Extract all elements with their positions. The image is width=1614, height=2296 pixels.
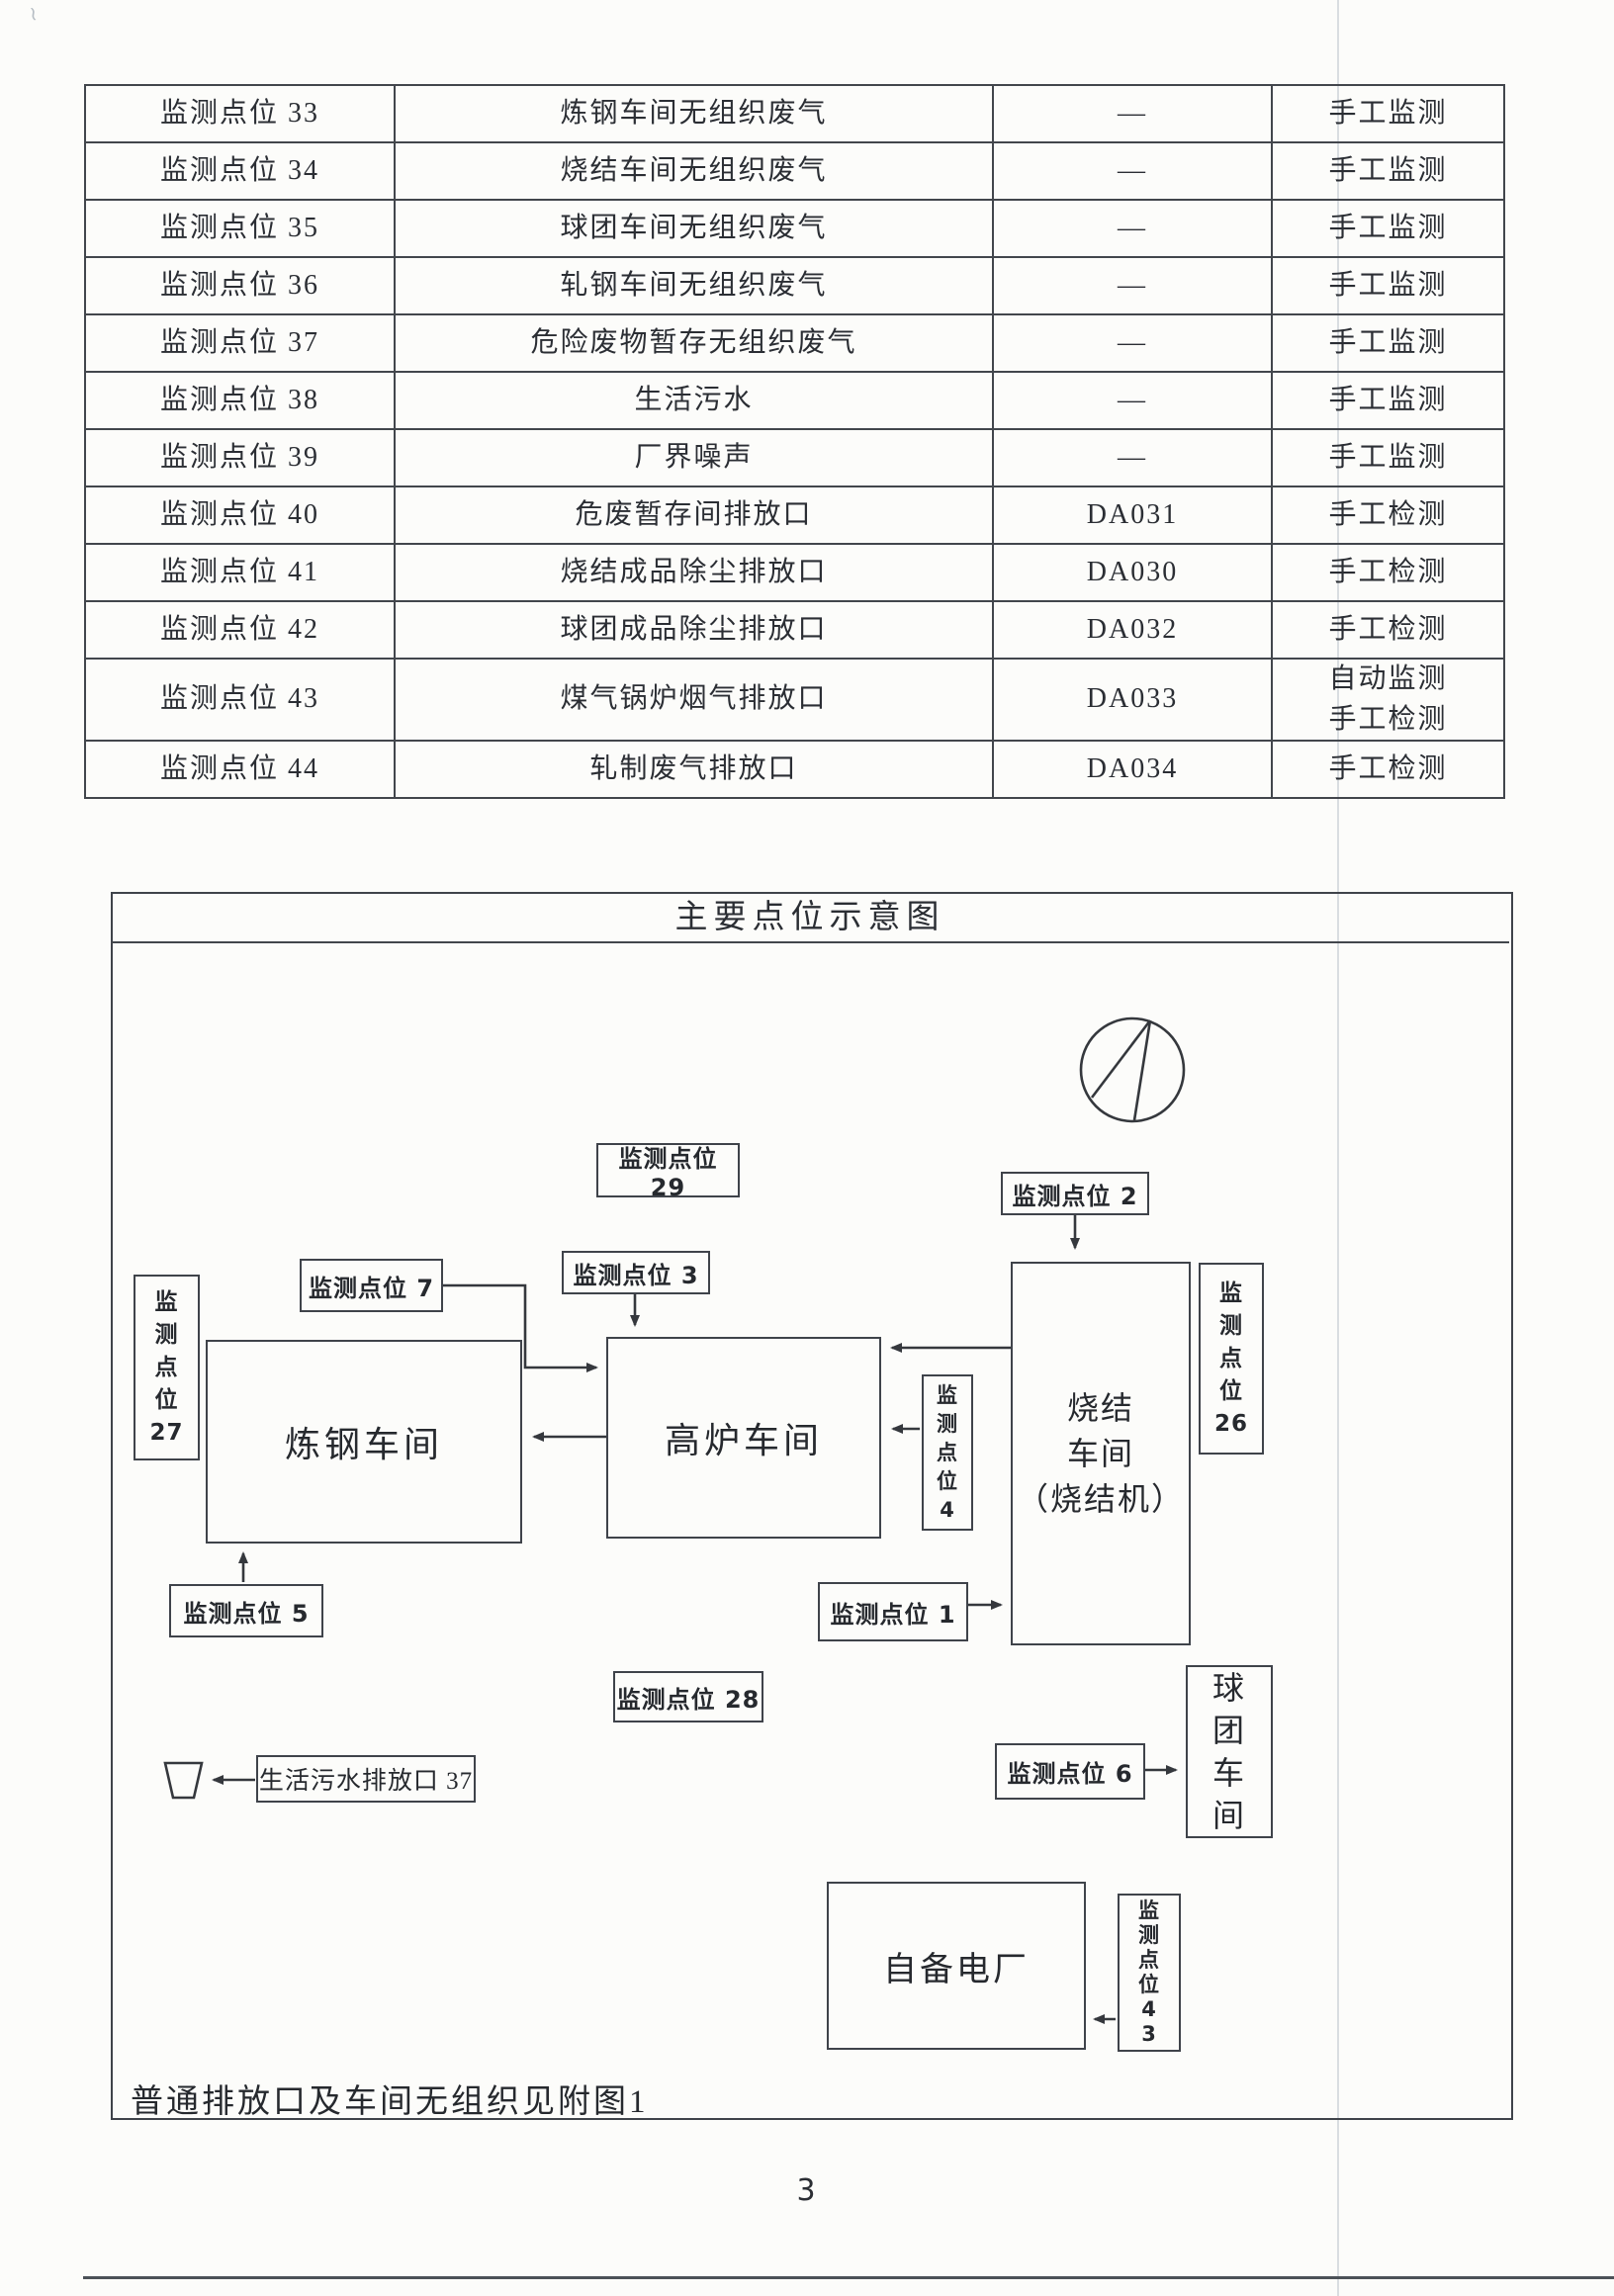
outlet-code-cell: DA031 <box>993 486 1272 544</box>
label-box-sewage-outlet-37: 生活污水排放口 37 <box>256 1755 476 1803</box>
point-name-cell: 监测点位 34 <box>85 142 395 200</box>
diagram-title: 主要点位示意图 <box>111 894 1509 941</box>
monitor-method-cell: 手工监测 <box>1272 429 1504 486</box>
monitoring-table-body: 监测点位 33 炼钢车间无组织废气 — 手工监测 监测点位 34 烧结车间无组织… <box>85 85 1504 798</box>
label-box-point-28: 监测点位 28 <box>613 1671 763 1722</box>
table-row: 监测点位 43 煤气锅炉烟气排放口 DA033 自动监测 手工检测 <box>85 659 1504 741</box>
outlet-code-cell: — <box>993 257 1272 314</box>
monitor-method-cell: 手工监测 <box>1272 257 1504 314</box>
point-desc-cell: 生活污水 <box>395 372 993 429</box>
outlet-code-cell: — <box>993 372 1272 429</box>
outlet-code-cell: — <box>993 429 1272 486</box>
point-name-cell: 监测点位 37 <box>85 314 395 372</box>
monitor-method-cell: 手工检测 <box>1272 486 1504 544</box>
label-box-point-3: 监测点位 3 <box>562 1251 710 1294</box>
monitor-method-cell: 手工监测 <box>1272 314 1504 372</box>
point-name-cell: 监测点位 33 <box>85 85 395 142</box>
monitor-method-cell: 手工检测 <box>1272 544 1504 601</box>
point-desc-cell: 危废暂存间排放口 <box>395 486 993 544</box>
page-number: 3 <box>762 2173 851 2208</box>
scan-corner-mark: ~ <box>21 4 47 25</box>
workshop-box-power-plant: 自备电厂 <box>827 1882 1086 2050</box>
monitor-method-cell: 手工检测 <box>1272 601 1504 659</box>
monitor-method-cell: 自动监测 手工检测 <box>1272 659 1504 741</box>
scan-bottom-line <box>83 2276 1614 2279</box>
point-desc-cell: 球团成品除尘排放口 <box>395 601 993 659</box>
label-box-point-7: 监测点位 7 <box>300 1259 443 1312</box>
point-name-cell: 监测点位 44 <box>85 741 395 798</box>
monitor-method-cell: 手工监测 <box>1272 142 1504 200</box>
label-box-point-29: 监测点位 29 <box>596 1143 740 1197</box>
workshop-box-pelletizing: 球 团 车 间 <box>1186 1665 1273 1838</box>
point-name-cell: 监测点位 40 <box>85 486 395 544</box>
table-row: 监测点位 37 危险废物暂存无组织废气 — 手工监测 <box>85 314 1504 372</box>
label-box-point-27: 监 测 点 位 27 <box>134 1275 200 1460</box>
point-desc-cell: 轧制废气排放口 <box>395 741 993 798</box>
table-row: 监测点位 42 球团成品除尘排放口 DA032 手工检测 <box>85 601 1504 659</box>
outlet-code-cell: — <box>993 142 1272 200</box>
label-box-point-2: 监测点位 2 <box>1001 1172 1149 1215</box>
outlet-code-cell: DA032 <box>993 601 1272 659</box>
table-row: 监测点位 35 球团车间无组织废气 — 手工监测 <box>85 200 1504 257</box>
table-row: 监测点位 41 烧结成品除尘排放口 DA030 手工检测 <box>85 544 1504 601</box>
point-name-cell: 监测点位 38 <box>85 372 395 429</box>
outlet-code-cell: DA033 <box>993 659 1272 741</box>
label-box-point-26: 监 测 点 位 26 <box>1199 1263 1264 1455</box>
workshop-box-blast-furnace: 高炉车间 <box>606 1337 881 1539</box>
monitor-method-cell: 手工监测 <box>1272 372 1504 429</box>
workshop-box-steelmaking: 炼钢车间 <box>206 1340 522 1544</box>
table-row: 监测点位 34 烧结车间无组织废气 — 手工监测 <box>85 142 1504 200</box>
point-desc-cell: 煤气锅炉烟气排放口 <box>395 659 993 741</box>
scanned-document-page: ~ 监测点位 33 炼钢车间无组织废气 — 手工监测 监测点位 34 烧结车间无… <box>0 0 1614 2296</box>
label-box-point-1: 监测点位 1 <box>818 1582 968 1641</box>
monitor-method-cell: 手工监测 <box>1272 85 1504 142</box>
monitor-method-cell: 手工检测 <box>1272 741 1504 798</box>
workshop-box-sintering: 烧结 车间 （烧结机） <box>1011 1262 1191 1645</box>
point-name-cell: 监测点位 41 <box>85 544 395 601</box>
point-desc-cell: 轧钢车间无组织废气 <box>395 257 993 314</box>
point-name-cell: 监测点位 35 <box>85 200 395 257</box>
point-desc-cell: 危险废物暂存无组织废气 <box>395 314 993 372</box>
outlet-code-cell: — <box>993 314 1272 372</box>
label-box-point-43: 监 测 点 位 4 3 <box>1118 1894 1181 2052</box>
table-row: 监测点位 33 炼钢车间无组织废气 — 手工监测 <box>85 85 1504 142</box>
outlet-code-cell: DA030 <box>993 544 1272 601</box>
outlet-code-cell: — <box>993 85 1272 142</box>
point-desc-cell: 烧结车间无组织废气 <box>395 142 993 200</box>
table-row: 监测点位 44 轧制废气排放口 DA034 手工检测 <box>85 741 1504 798</box>
point-desc-cell: 炼钢车间无组织废气 <box>395 85 993 142</box>
point-desc-cell: 厂界噪声 <box>395 429 993 486</box>
label-box-point-5: 监测点位 5 <box>169 1584 323 1637</box>
point-name-cell: 监测点位 36 <box>85 257 395 314</box>
monitoring-points-table: 监测点位 33 炼钢车间无组织废气 — 手工监测 监测点位 34 烧结车间无组织… <box>84 84 1505 799</box>
table-row: 监测点位 36 轧钢车间无组织废气 — 手工监测 <box>85 257 1504 314</box>
point-name-cell: 监测点位 42 <box>85 601 395 659</box>
point-name-cell: 监测点位 43 <box>85 659 395 741</box>
outlet-code-cell: DA034 <box>993 741 1272 798</box>
point-name-cell: 监测点位 39 <box>85 429 395 486</box>
label-box-point-4: 监 测 点 位 4 <box>922 1374 973 1531</box>
outlet-code-cell: — <box>993 200 1272 257</box>
diagram-title-separator <box>111 941 1509 943</box>
point-desc-cell: 烧结成品除尘排放口 <box>395 544 993 601</box>
monitor-method-cell: 手工监测 <box>1272 200 1504 257</box>
diagram-footnote: 普通排放口及车间无组织见附图1 <box>131 2075 823 2122</box>
label-box-point-6: 监测点位 6 <box>995 1743 1145 1800</box>
table-row: 监测点位 40 危废暂存间排放口 DA031 手工检测 <box>85 486 1504 544</box>
table-row: 监测点位 38 生活污水 — 手工监测 <box>85 372 1504 429</box>
point-desc-cell: 球团车间无组织废气 <box>395 200 993 257</box>
table-row: 监测点位 39 厂界噪声 — 手工监测 <box>85 429 1504 486</box>
